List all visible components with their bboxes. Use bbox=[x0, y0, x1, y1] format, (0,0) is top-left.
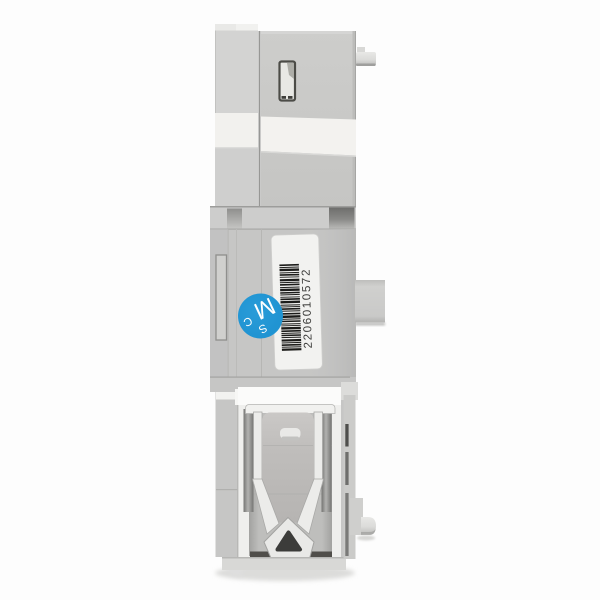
svg-text:2206010572: 2206010572 bbox=[299, 268, 314, 349]
